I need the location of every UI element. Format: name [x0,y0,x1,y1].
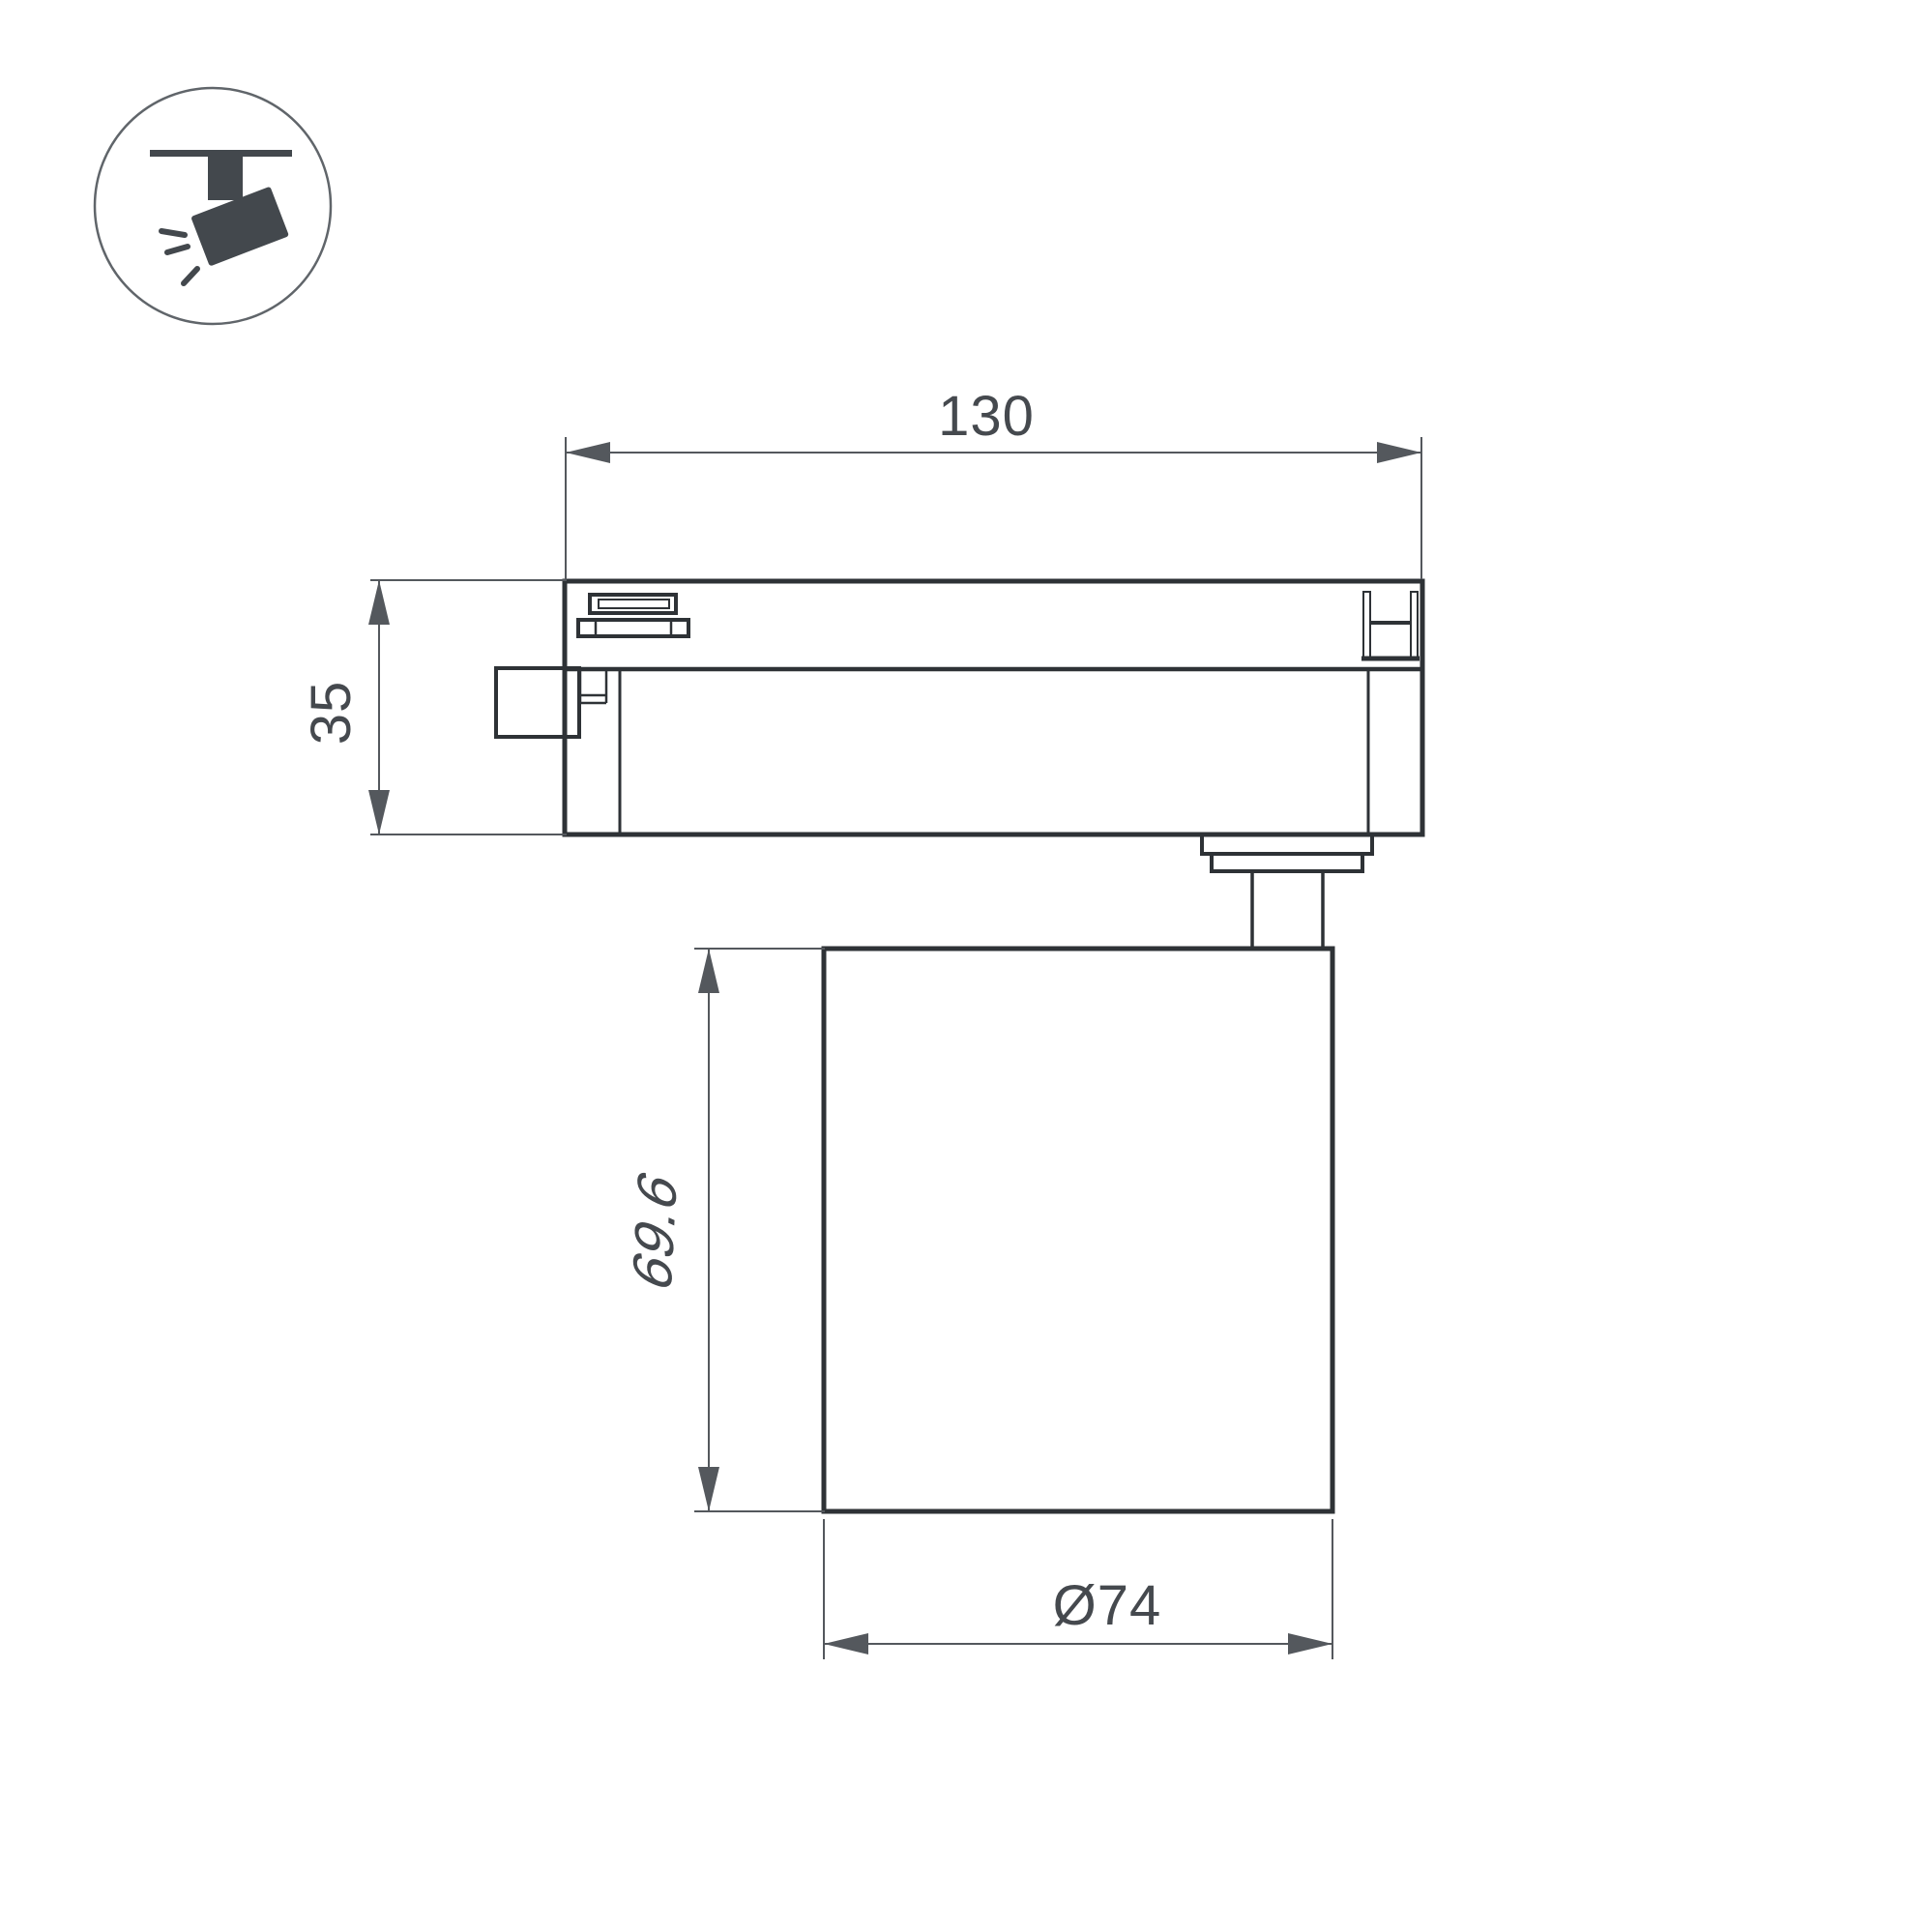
dimension-label-35: 35 [300,681,363,746]
joint-flange-lower [1212,854,1362,871]
arrowhead-right [1377,442,1421,463]
dimension-overall-width: 130 [566,385,1421,579]
dimension-label-130: 130 [938,385,1035,448]
arrowhead-right [1288,1633,1332,1654]
icon-mount-stem [208,154,243,200]
arrowhead-left [566,442,610,463]
swivel-joint [1202,834,1372,949]
arrowhead-top [698,949,719,993]
track-adapter [496,581,1422,834]
dimension-adapter-height: 35 [300,580,567,834]
icon-circle [95,88,331,324]
dimension-label-69-6: 69.6 [622,1160,688,1301]
arrowhead-left [824,1633,868,1654]
adapter-contact-clip-lower [578,620,688,636]
arrowhead-bottom [698,1467,719,1511]
dimension-head-height: 69.6 [622,949,825,1511]
adapter-contact-clip-upper [590,595,676,613]
dimension-label-d74: Ø74 [1053,1574,1162,1637]
technical-drawing: 130 35 69.6 Ø74 [0,0,1932,1932]
adapter-lock-bracket [1361,592,1420,659]
arrowhead-bottom [368,790,390,834]
dimension-head-diameter: Ø74 [824,1519,1332,1659]
lamp-head-outline [824,949,1332,1511]
drawing-page: 130 35 69.6 Ø74 [0,0,1932,1932]
icon-lamp-head [190,187,289,267]
icon-light-rays [161,231,197,283]
adapter-latch-notch [580,670,606,703]
joint-flange-upper [1202,834,1372,854]
adapter-outline [565,581,1422,834]
arrowhead-top [368,580,390,625]
track-spotlight-icon [95,88,331,324]
